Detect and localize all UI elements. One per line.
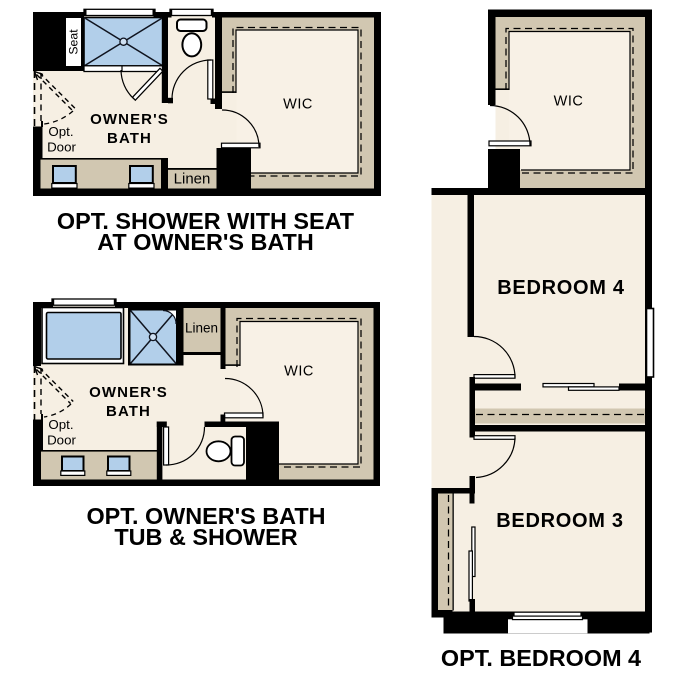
- svg-text:Opt.: Opt.: [48, 124, 73, 139]
- svg-text:Linen: Linen: [185, 321, 218, 336]
- svg-text:WIC: WIC: [554, 94, 584, 110]
- svg-text:Linen: Linen: [174, 171, 211, 188]
- svg-text:TUB & SHOWER: TUB & SHOWER: [114, 524, 297, 550]
- svg-text:BEDROOM 3: BEDROOM 3: [496, 510, 623, 532]
- svg-text:Opt.: Opt.: [48, 417, 73, 432]
- svg-text:BATH: BATH: [106, 403, 151, 420]
- svg-text:OWNER'S: OWNER'S: [89, 384, 168, 401]
- svg-text:Seat: Seat: [66, 29, 80, 55]
- svg-text:OPT. BEDROOM 4: OPT. BEDROOM 4: [441, 645, 641, 671]
- svg-text:OWNER'S: OWNER'S: [90, 111, 169, 128]
- svg-text:AT OWNER'S BATH: AT OWNER'S BATH: [97, 229, 314, 255]
- svg-text:WIC: WIC: [283, 97, 313, 113]
- svg-text:WIC: WIC: [284, 364, 314, 380]
- svg-text:Door: Door: [47, 140, 76, 155]
- svg-text:Door: Door: [47, 433, 76, 448]
- svg-text:BEDROOM 4: BEDROOM 4: [497, 277, 625, 299]
- svg-text:BATH: BATH: [107, 130, 152, 147]
